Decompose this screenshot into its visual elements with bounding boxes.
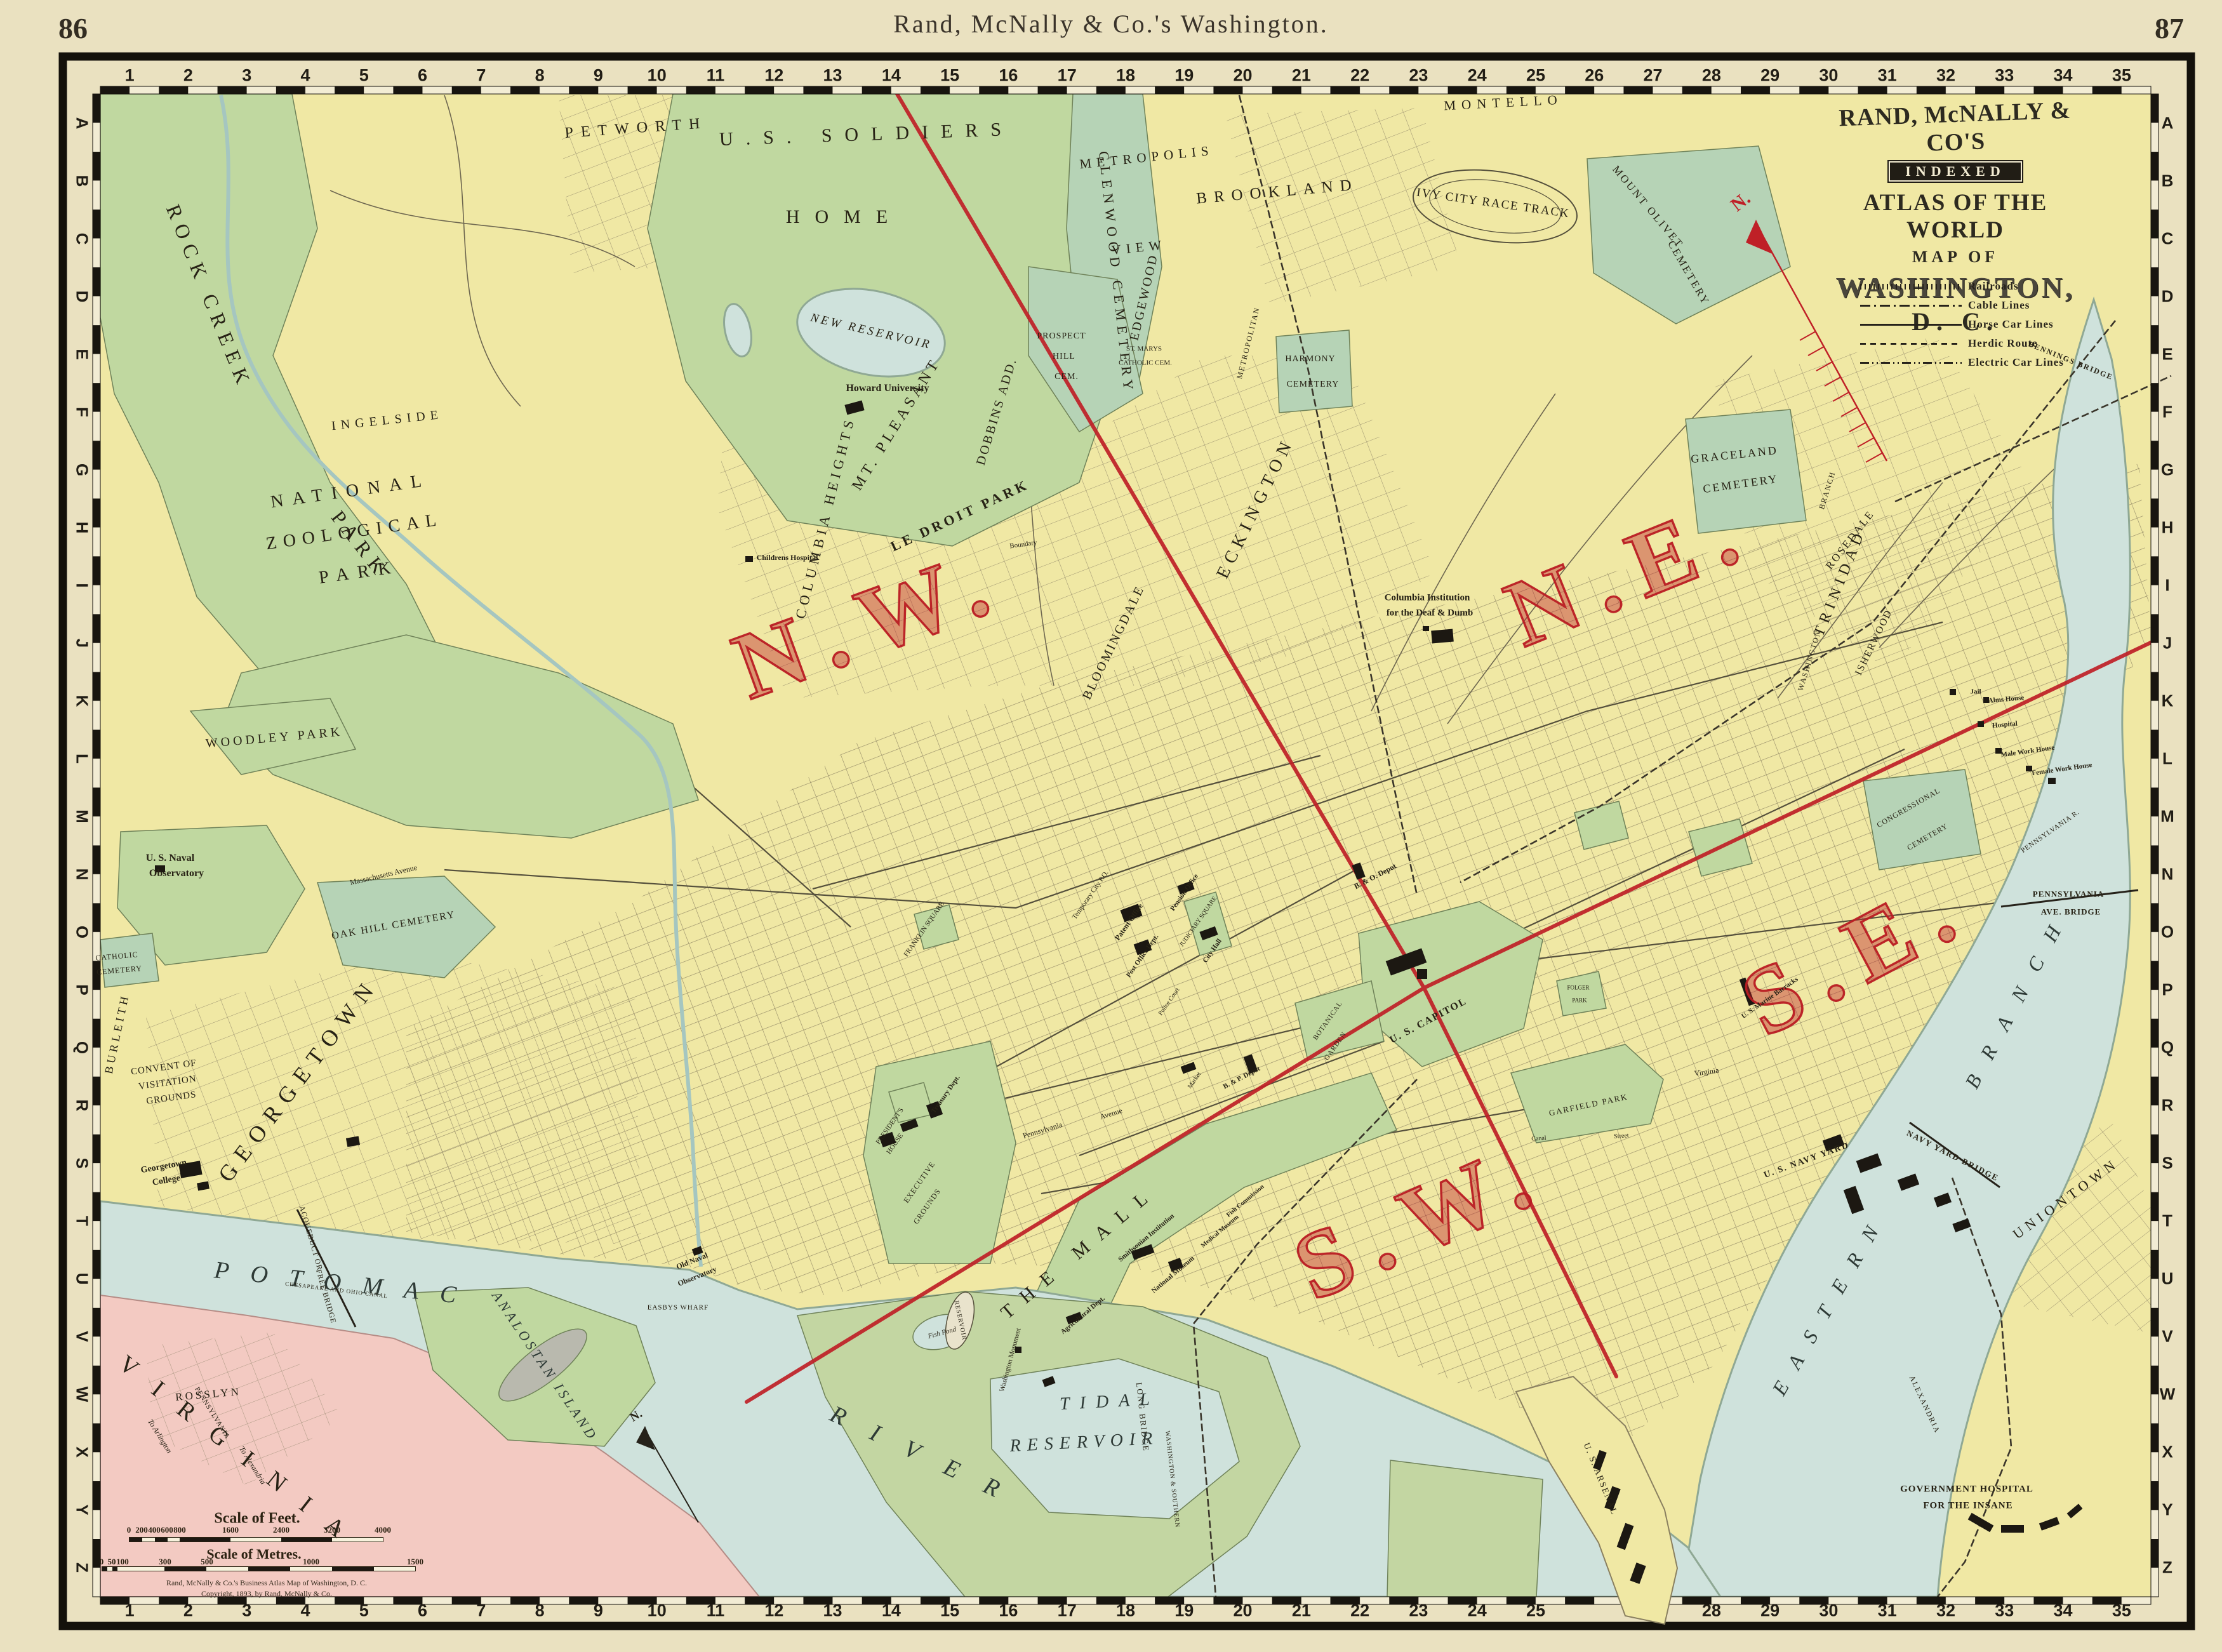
grid-number-top: 8 bbox=[535, 66, 545, 86]
grid-letter-right: M bbox=[2160, 806, 2174, 826]
grid-number-top: 30 bbox=[1819, 66, 1838, 86]
grid-number-bottom: 25 bbox=[1526, 1601, 1545, 1621]
grid-letter-right: U bbox=[2162, 1269, 2174, 1289]
grid-number-top: 18 bbox=[1116, 66, 1135, 86]
grid-letter-right: H bbox=[2162, 517, 2174, 537]
grid-number-top: 16 bbox=[999, 66, 1018, 86]
grid-number-bottom: 15 bbox=[940, 1601, 959, 1621]
grid-number-bottom: 14 bbox=[882, 1601, 901, 1621]
grid-number-bottom: 9 bbox=[594, 1601, 603, 1621]
grid-number-bottom: 31 bbox=[1878, 1601, 1897, 1621]
grid-letter-right: X bbox=[2162, 1442, 2172, 1462]
grid-number-bottom: 24 bbox=[1468, 1601, 1487, 1621]
grid-number-bottom: 30 bbox=[1819, 1601, 1838, 1621]
grid-number-bottom: 23 bbox=[1409, 1601, 1428, 1621]
grid-number-top: 21 bbox=[1292, 66, 1311, 86]
grid-number-top: 34 bbox=[2054, 66, 2073, 86]
grid-number-top: 4 bbox=[300, 66, 310, 86]
grid-letter-left: R bbox=[72, 1100, 92, 1112]
grid-letter-right: R bbox=[2162, 1096, 2174, 1116]
grid-number-bottom: 6 bbox=[418, 1601, 427, 1621]
grid-number-top: 31 bbox=[1878, 66, 1897, 86]
grid-number-top: 25 bbox=[1526, 66, 1545, 86]
grid-number-top: 27 bbox=[1644, 66, 1663, 86]
grid-number-top: 22 bbox=[1350, 66, 1369, 86]
grid-number-top: 28 bbox=[1702, 66, 1721, 86]
grid-letter-right: C bbox=[2162, 229, 2174, 248]
grid-number-bottom: 18 bbox=[1116, 1601, 1135, 1621]
grid-letter-right: A bbox=[2162, 113, 2174, 133]
grid-letter-left: F bbox=[72, 407, 92, 417]
grid-letter-right: Z bbox=[2162, 1558, 2172, 1578]
grid-number-top: 14 bbox=[882, 66, 901, 86]
grid-index-layer: 1234567891011121314151617181920212223242… bbox=[0, 0, 2222, 1652]
grid-number-bottom: 17 bbox=[1058, 1601, 1077, 1621]
grid-number-bottom: 35 bbox=[2112, 1601, 2131, 1621]
grid-letter-left: D bbox=[72, 290, 92, 302]
grid-letter-left: X bbox=[72, 1447, 92, 1458]
grid-number-top: 5 bbox=[359, 66, 369, 86]
grid-letter-right: N bbox=[2162, 865, 2174, 884]
grid-number-bottom: 19 bbox=[1174, 1601, 1194, 1621]
grid-letter-left: U bbox=[72, 1273, 92, 1285]
grid-number-top: 35 bbox=[2112, 66, 2131, 86]
grid-letter-right: T bbox=[2162, 1211, 2172, 1231]
grid-letter-right: O bbox=[2161, 923, 2174, 942]
grid-letter-left: W bbox=[72, 1387, 92, 1402]
grid-number-bottom: 22 bbox=[1350, 1601, 1369, 1621]
grid-number-bottom: 1 bbox=[125, 1601, 135, 1621]
grid-letter-right: K bbox=[2162, 691, 2174, 710]
grid-number-bottom: 10 bbox=[648, 1601, 667, 1621]
grid-letter-left: A bbox=[72, 117, 92, 129]
grid-number-bottom: 11 bbox=[707, 1601, 725, 1621]
grid-letter-right: Q bbox=[2161, 1038, 2174, 1058]
grid-letter-left: Q bbox=[72, 1041, 92, 1054]
grid-number-top: 2 bbox=[183, 66, 193, 86]
grid-number-bottom: 28 bbox=[1702, 1601, 1721, 1621]
grid-number-bottom: 3 bbox=[242, 1601, 251, 1621]
grid-number-bottom: 7 bbox=[476, 1601, 486, 1621]
grid-number-bottom: 12 bbox=[764, 1601, 783, 1621]
grid-letter-right: L bbox=[2162, 749, 2172, 768]
grid-letter-right: I bbox=[2165, 575, 2169, 595]
grid-letter-left: O bbox=[72, 926, 92, 938]
grid-letter-right: V bbox=[2162, 1327, 2172, 1347]
grid-letter-left: S bbox=[72, 1158, 92, 1169]
grid-number-top: 32 bbox=[1936, 66, 1955, 86]
grid-letter-left: J bbox=[72, 639, 92, 648]
grid-letter-right: W bbox=[2160, 1385, 2176, 1404]
grid-letter-right: D bbox=[2162, 286, 2174, 306]
grid-letter-right: F bbox=[2162, 402, 2172, 422]
grid-letter-left: P bbox=[72, 984, 92, 995]
grid-letter-right: S bbox=[2162, 1154, 2172, 1173]
grid-number-bottom: 29 bbox=[1760, 1601, 1780, 1621]
grid-letter-left: I bbox=[72, 583, 92, 587]
grid-number-bottom: 5 bbox=[359, 1601, 369, 1621]
grid-number-top: 13 bbox=[823, 66, 842, 86]
grid-number-top: 15 bbox=[940, 66, 959, 86]
grid-number-top: 3 bbox=[242, 66, 251, 86]
grid-letter-left: K bbox=[72, 695, 92, 707]
grid-number-top: 6 bbox=[418, 66, 427, 86]
grid-number-bottom: 8 bbox=[535, 1601, 545, 1621]
grid-number-bottom: 32 bbox=[1936, 1601, 1955, 1621]
grid-number-top: 9 bbox=[594, 66, 603, 86]
grid-number-top: 26 bbox=[1585, 66, 1604, 86]
grid-number-bottom: 33 bbox=[1995, 1601, 2014, 1621]
grid-letter-left: M bbox=[72, 809, 92, 823]
grid-letter-left: V bbox=[72, 1331, 92, 1342]
grid-letter-right: P bbox=[2162, 980, 2172, 1000]
atlas-page: 86 87 Rand, McNally & Co.'s Washington. … bbox=[0, 0, 2222, 1652]
grid-letter-left: H bbox=[72, 521, 92, 533]
grid-number-top: 19 bbox=[1174, 66, 1194, 86]
grid-number-top: 11 bbox=[707, 66, 725, 86]
grid-letter-left: N bbox=[72, 869, 92, 881]
grid-letter-left: B bbox=[72, 175, 92, 187]
grid-letter-right: B bbox=[2162, 171, 2174, 190]
grid-number-top: 24 bbox=[1468, 66, 1487, 86]
grid-letter-left: E bbox=[72, 349, 92, 359]
grid-number-top: 29 bbox=[1760, 66, 1780, 86]
grid-letter-right: J bbox=[2163, 633, 2172, 653]
grid-letter-left: C bbox=[72, 232, 92, 244]
grid-number-top: 23 bbox=[1409, 66, 1428, 86]
grid-number-top: 10 bbox=[648, 66, 667, 86]
grid-number-bottom: 13 bbox=[823, 1601, 842, 1621]
grid-number-bottom: 20 bbox=[1234, 1601, 1253, 1621]
grid-letter-right: Y bbox=[2162, 1500, 2172, 1520]
grid-number-top: 17 bbox=[1058, 66, 1077, 86]
grid-letter-left: T bbox=[72, 1216, 92, 1226]
grid-letter-left: G bbox=[72, 463, 92, 476]
grid-number-top: 7 bbox=[476, 66, 486, 86]
grid-letter-left: L bbox=[72, 754, 92, 764]
grid-letter-right: G bbox=[2161, 460, 2174, 479]
grid-number-top: 33 bbox=[1995, 66, 2014, 86]
grid-number-bottom: 16 bbox=[999, 1601, 1018, 1621]
grid-number-bottom: 34 bbox=[2054, 1601, 2073, 1621]
grid-letter-right: E bbox=[2162, 344, 2172, 364]
grid-number-bottom: 2 bbox=[183, 1601, 193, 1621]
grid-letter-left: Y bbox=[72, 1505, 92, 1515]
grid-number-bottom: 21 bbox=[1292, 1601, 1311, 1621]
grid-letter-left: Z bbox=[72, 1563, 92, 1573]
grid-number-top: 20 bbox=[1234, 66, 1253, 86]
grid-number-top: 12 bbox=[764, 66, 783, 86]
grid-number-top: 1 bbox=[125, 66, 135, 86]
grid-number-bottom: 4 bbox=[300, 1601, 310, 1621]
